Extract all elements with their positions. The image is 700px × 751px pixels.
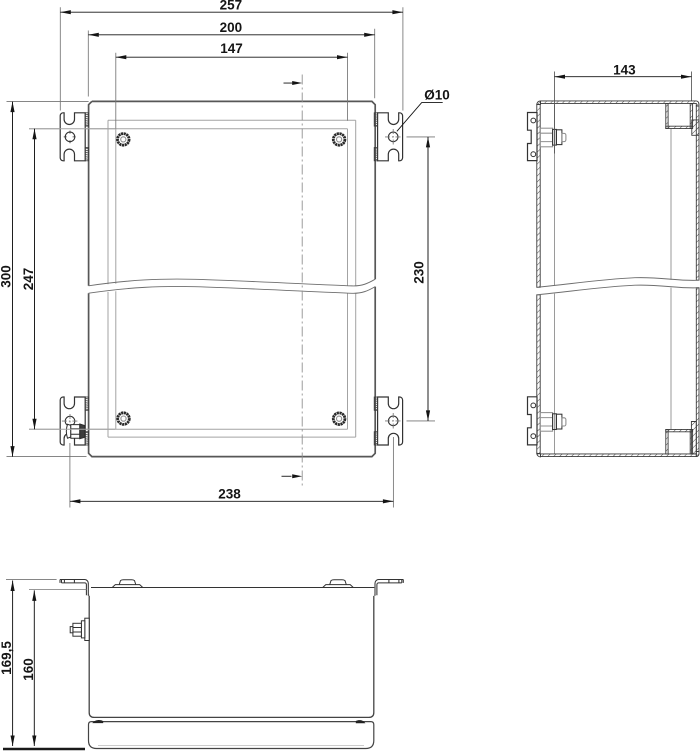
- svg-text:Ø10: Ø10: [424, 88, 450, 103]
- svg-text:300: 300: [0, 265, 14, 288]
- svg-text:160: 160: [21, 658, 36, 681]
- svg-text:247: 247: [21, 268, 36, 291]
- svg-text:147: 147: [220, 41, 243, 56]
- svg-text:143: 143: [613, 62, 636, 77]
- svg-text:200: 200: [220, 20, 243, 35]
- svg-text:238: 238: [218, 487, 241, 502]
- svg-text:230: 230: [411, 261, 426, 284]
- svg-text:257: 257: [220, 0, 243, 12]
- svg-text:169,5: 169,5: [0, 641, 14, 675]
